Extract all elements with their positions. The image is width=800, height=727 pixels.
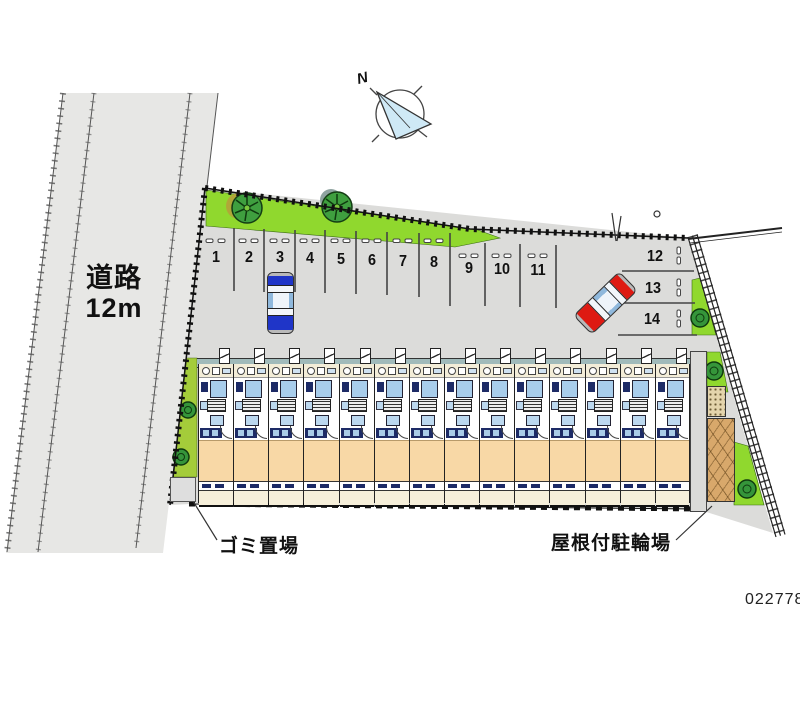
door-icon [500, 348, 511, 364]
door-icon [430, 348, 441, 364]
door-icon [676, 348, 687, 364]
compass-icon [370, 86, 431, 142]
site-plan: 1234567891011121314 道路 12m N ゴミ置場 屋根付駐輪場… [0, 0, 800, 727]
parking-stall-number: 6 [368, 252, 376, 270]
parking-stall-number: 2 [245, 249, 253, 267]
apartment-unit [479, 364, 514, 503]
bicycle-parking-label: 屋根付駐輪場 [551, 528, 671, 555]
apartment-unit [409, 364, 444, 503]
garbage-area-label: ゴミ置場 [219, 531, 299, 558]
road-name: 道路 [62, 263, 166, 293]
covered-bicycle-parking-box [707, 418, 735, 502]
apartment-unit [549, 364, 584, 503]
apartment-unit [620, 364, 655, 503]
parking-stall-number: 1 [212, 249, 220, 267]
apartment-building [197, 348, 709, 508]
apartment-unit [198, 364, 233, 503]
parking-stall-number: 9 [465, 260, 473, 278]
parking-stall-number: 13 [645, 280, 661, 298]
parking-stall-number: 4 [306, 250, 314, 268]
door-icon [395, 348, 406, 364]
plan-number: 022778 [745, 591, 800, 609]
door-icon [465, 348, 476, 364]
door-icon [360, 348, 371, 364]
parking-stall-number: 8 [430, 254, 438, 272]
door-icon [289, 348, 300, 364]
parking-stall-number: 12 [647, 248, 663, 266]
apartment-unit [655, 364, 690, 503]
parking-stall-number: 5 [337, 251, 345, 269]
door-icon [324, 348, 335, 364]
parking-stall-number: 10 [494, 261, 510, 279]
apartment-unit [444, 364, 479, 503]
apartment-unit [303, 364, 338, 503]
door-icon [219, 348, 230, 364]
apartment-unit [585, 364, 620, 503]
door-icon [606, 348, 617, 364]
apartment-unit [339, 364, 374, 503]
door-icon [641, 348, 652, 364]
door-icon [570, 348, 581, 364]
parking-stall-number: 3 [276, 249, 284, 267]
apartment-unit [268, 364, 303, 503]
road-width: 12m [62, 293, 166, 323]
door-icon [535, 348, 546, 364]
blue-car [267, 272, 294, 334]
building-end-wall [690, 351, 707, 512]
parking-stall-number: 7 [399, 253, 407, 271]
garbage-area-box [170, 477, 196, 502]
apartment-unit [514, 364, 549, 503]
road-label: 道路 12m [62, 263, 166, 323]
apartment-unit [233, 364, 268, 503]
planter-box [707, 386, 726, 417]
parking-stall-number: 14 [644, 311, 660, 329]
door-icon [254, 348, 265, 364]
apartment-unit [374, 364, 409, 503]
parking-stall-number: 11 [530, 262, 545, 280]
